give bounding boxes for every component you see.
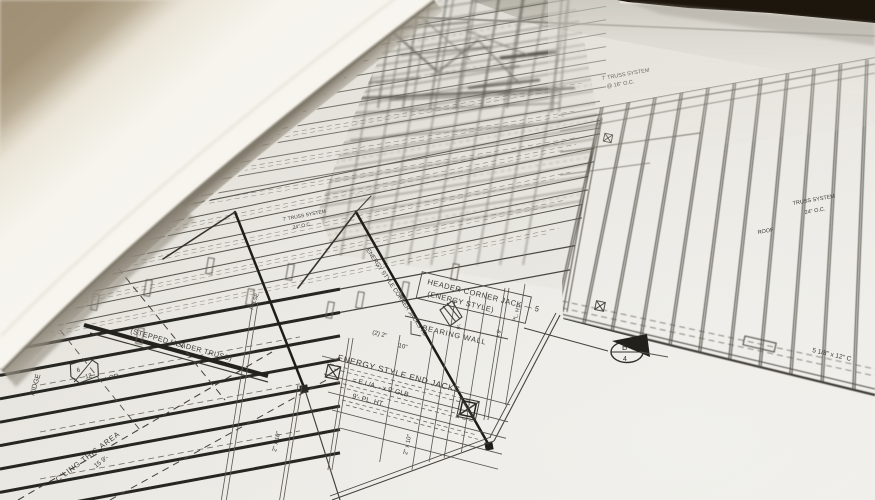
- svg-text:4: 4: [623, 356, 627, 363]
- svg-text:B: B: [622, 343, 627, 352]
